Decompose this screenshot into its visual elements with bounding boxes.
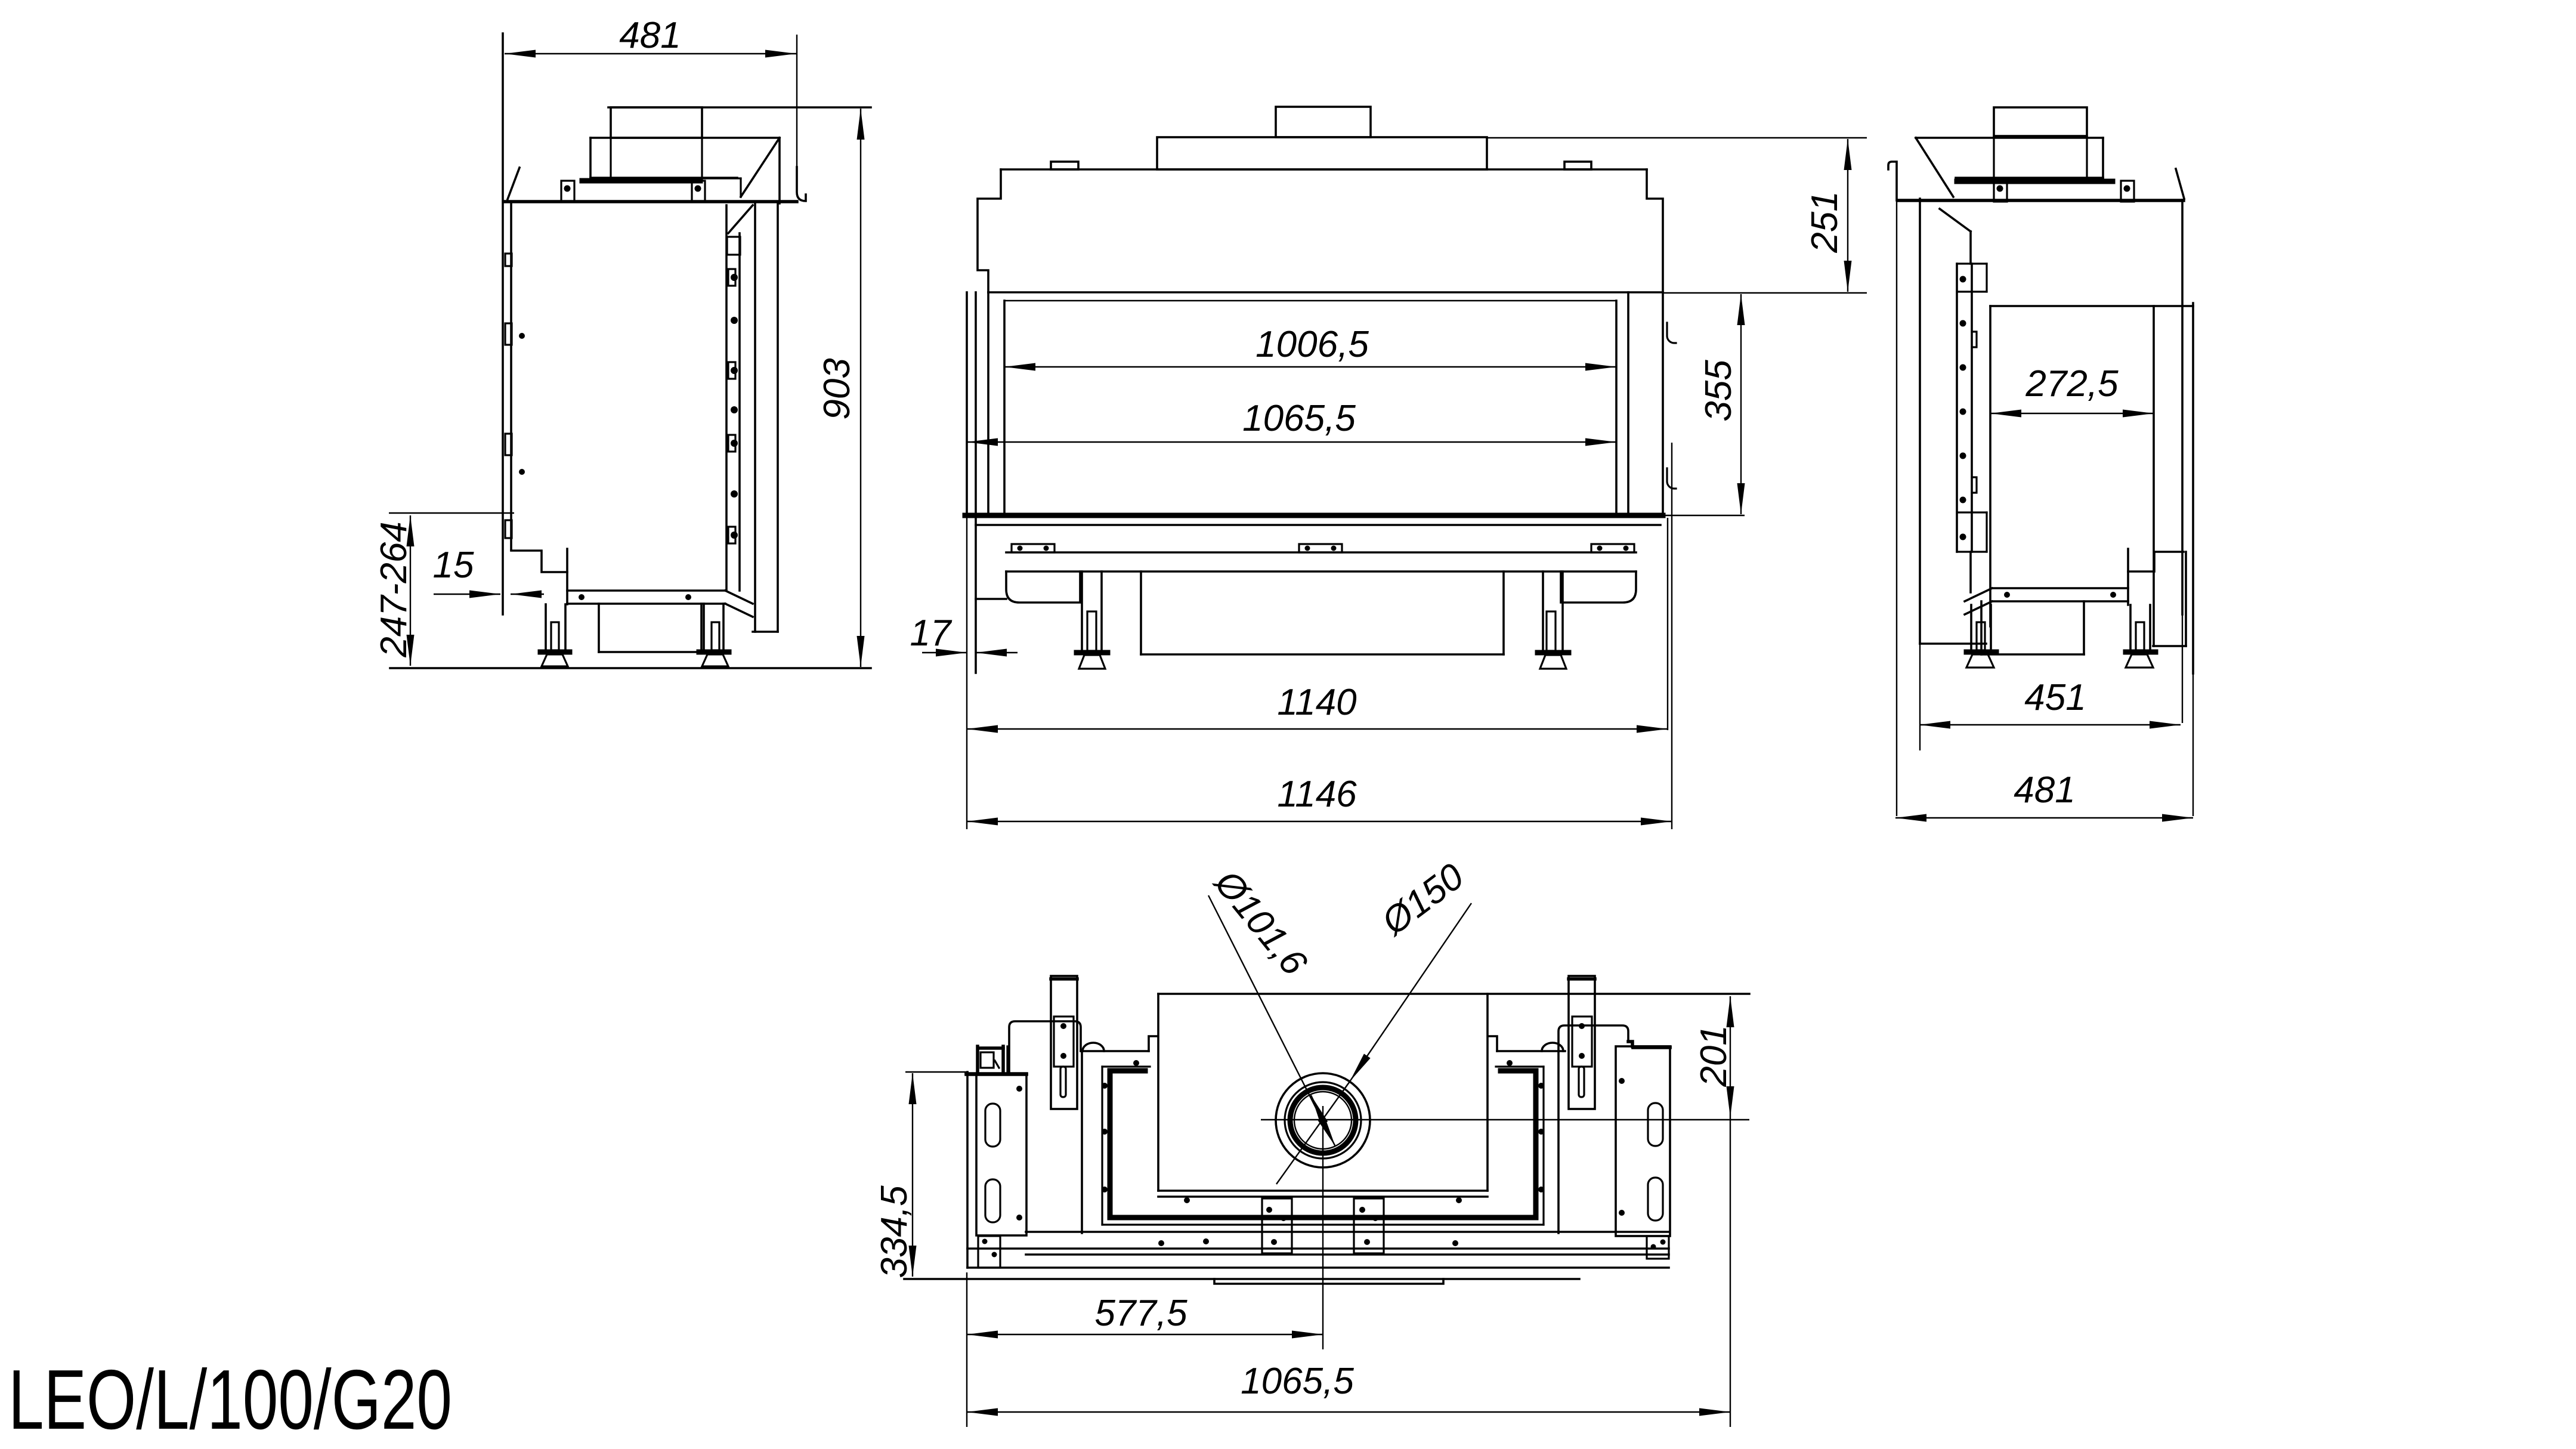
svg-text:355: 355 — [1698, 360, 1739, 422]
svg-text:272,5: 272,5 — [2025, 363, 2119, 404]
svg-text:577,5: 577,5 — [1094, 1293, 1188, 1334]
svg-text:1146: 1146 — [1277, 774, 1357, 815]
svg-text:903: 903 — [817, 358, 858, 419]
svg-text:1140: 1140 — [1277, 682, 1356, 723]
svg-text:451: 451 — [2024, 677, 2086, 718]
svg-text:201: 201 — [1693, 1025, 1734, 1087]
svg-text:1065,5: 1065,5 — [1241, 1361, 1354, 1402]
svg-text:1065,5: 1065,5 — [1242, 398, 1356, 439]
svg-text:LEO/L/100/G20: LEO/L/100/G20 — [8, 1352, 452, 1447]
svg-text:17: 17 — [910, 613, 953, 654]
svg-text:Ø150: Ø150 — [1374, 855, 1471, 944]
svg-text:1006,5: 1006,5 — [1255, 324, 1369, 365]
svg-text:334,5: 334,5 — [874, 1185, 915, 1278]
svg-text:15: 15 — [433, 545, 474, 586]
svg-text:481: 481 — [619, 15, 681, 56]
svg-text:481: 481 — [2014, 770, 2075, 811]
svg-text:251: 251 — [1804, 191, 1845, 253]
svg-text:247-264: 247-264 — [373, 521, 415, 658]
